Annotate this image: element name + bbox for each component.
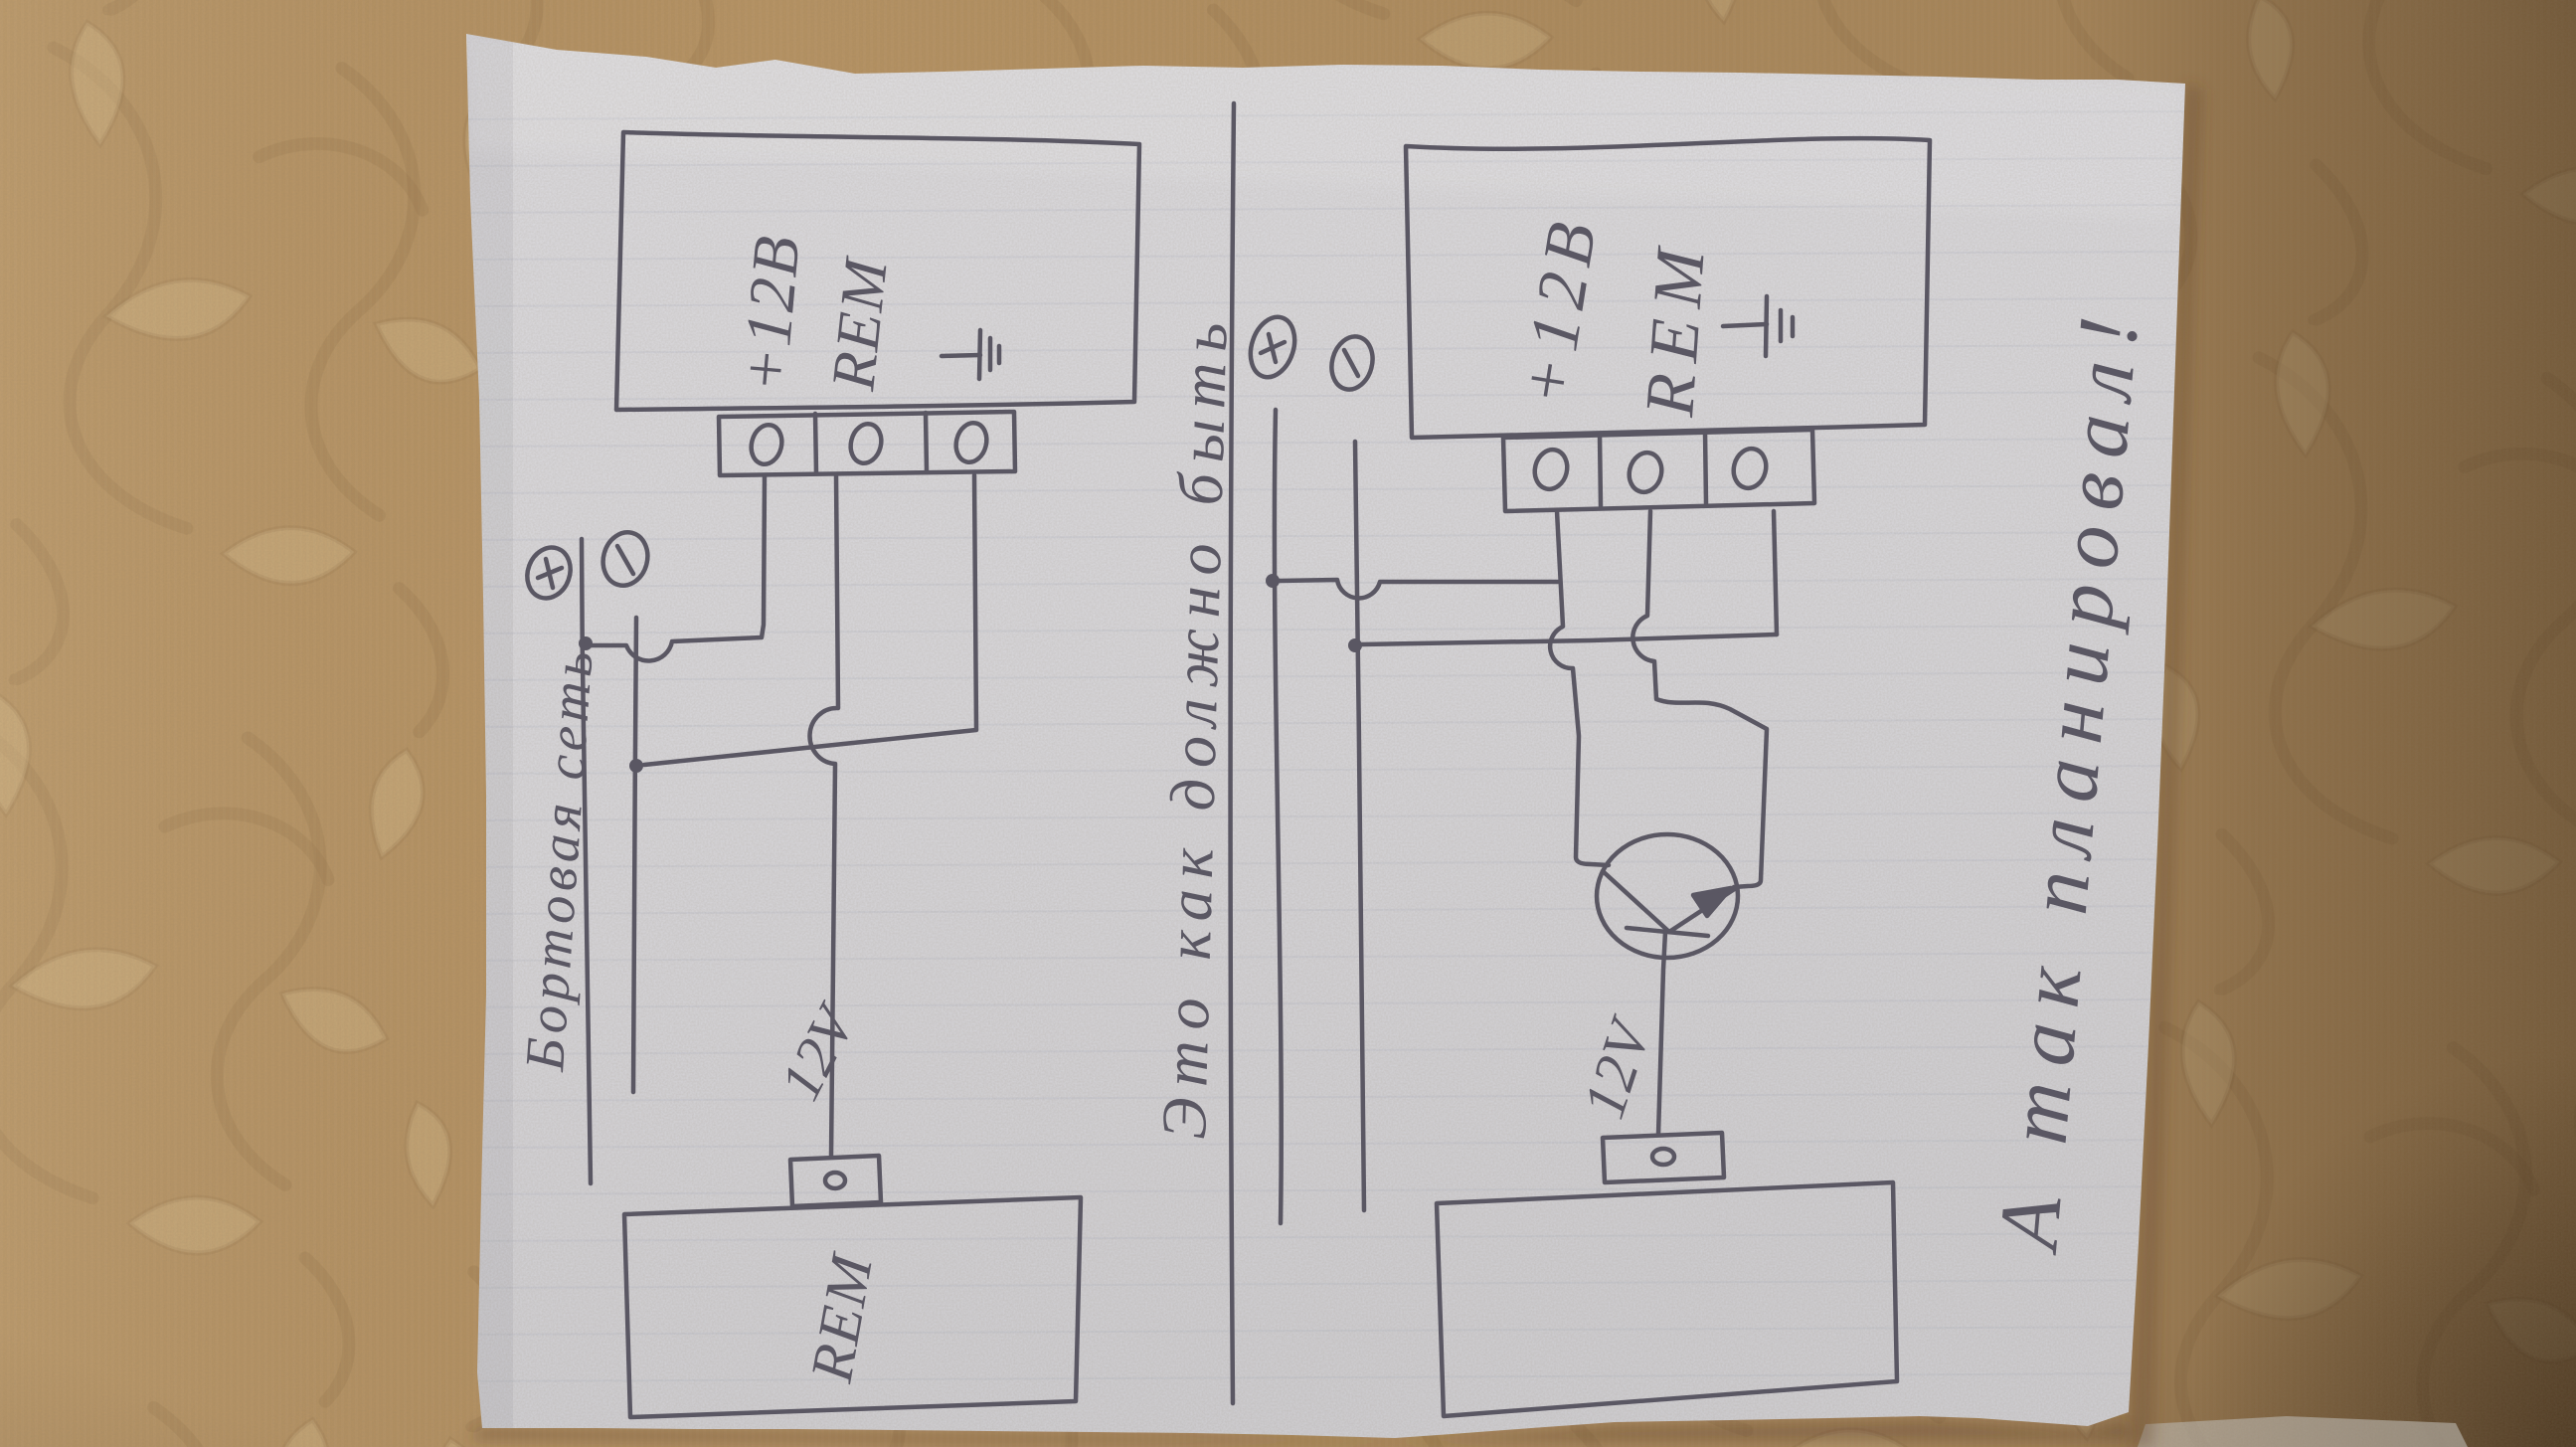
- svg-text:+12В: +12В: [728, 232, 814, 396]
- svg-text:REM: REM: [819, 253, 901, 394]
- svg-text:REM: REM: [1631, 235, 1720, 420]
